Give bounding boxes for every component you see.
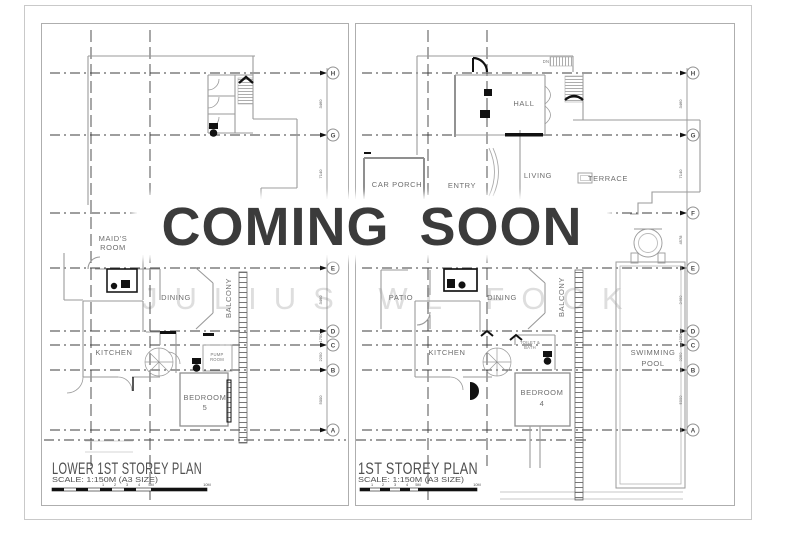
scale-tick: 10M: [203, 483, 210, 487]
dim-value: 3460: [678, 99, 683, 109]
floor-plan-sheet: { "overlay": { "text": "COMING SOON" }, …: [0, 0, 800, 533]
plan-scale-note: SCALE: 1:150M (A3 SIZE): [358, 475, 464, 484]
scale-tick: 10M: [473, 483, 480, 487]
scale-tick: 3: [126, 483, 128, 487]
right-grid-bubbles: H G F E D C B A: [687, 67, 699, 436]
room-label-bedroom-5: 5: [203, 403, 208, 412]
left-plan: H G E D C B A 3460 7140 3460 1750 2250 5…: [44, 30, 346, 500]
room-label-terrace: TERRACE: [588, 174, 628, 183]
grid-bubble-label: D: [331, 329, 336, 336]
grid-bubble-label: B: [331, 368, 336, 375]
grid-bubble-label: A: [331, 428, 336, 435]
fountain: [631, 229, 665, 263]
left-grid-lines: [44, 30, 346, 500]
stair-direction-label: DN: [543, 59, 549, 64]
grid-bubble-label: A: [691, 428, 696, 435]
grid-bubble-label: H: [331, 71, 336, 78]
scale-tick: 4: [406, 483, 408, 487]
scale-tick: 4: [138, 483, 140, 487]
room-label-maids-room: ROOM: [100, 243, 126, 252]
dim-value: 5000: [678, 395, 683, 405]
room-label-bedroom-4: 4: [540, 399, 545, 408]
dim-value: 3460: [318, 295, 323, 305]
coming-soon-banner: COMING SOON: [137, 199, 607, 255]
right-dimension-values: 3460 7140 4578 3460 1250 3250 5000: [678, 99, 683, 405]
left-plan-room-labels: MAID'S ROOM DINING BALCONY KITCHEN PUMP …: [95, 234, 233, 412]
spiral-stair: [145, 348, 173, 376]
room-label-patio: PATIO: [389, 293, 413, 302]
left-plan-stairs: [145, 77, 253, 443]
room-label-entry: ENTRY: [448, 181, 476, 190]
coming-soon-text: COMING SOON: [161, 196, 582, 258]
grid-bubble-label: E: [691, 266, 695, 273]
left-title-block: LOWER 1ST STOREY PLAN SCALE: 1:150M (A3 …: [52, 459, 211, 491]
room-label-maids-room: MAID'S: [99, 234, 128, 243]
grid-bubble-label: B: [691, 368, 696, 375]
dim-value: 2250: [318, 352, 323, 362]
right-plan-stairs: [483, 57, 583, 500]
scale-bar: 1 2 3 4 5M 10M: [360, 483, 481, 491]
grid-bubble-label: C: [331, 343, 336, 350]
room-label-balcony: BALCONY: [224, 278, 233, 318]
grid-bubble-label: F: [691, 211, 695, 218]
right-plan: H G F E D C B A 3460 7140 4578 3460 1250…: [356, 30, 700, 500]
balcony-ladder: [239, 272, 247, 443]
grid-bubble-label: D: [691, 329, 696, 336]
dim-value: 4578: [678, 235, 683, 245]
grid-bubble-label: H: [691, 71, 696, 78]
grid-bubble-label: C: [691, 343, 696, 350]
scale-tick: 1: [371, 483, 373, 487]
dim-value: 5000: [318, 395, 323, 405]
dim-value: 7140: [678, 169, 683, 179]
room-label-swimming-pool: POOL: [641, 359, 664, 368]
room-label-dining: DINING: [487, 293, 517, 302]
dim-value: 1750: [318, 333, 323, 343]
room-label-kitchen: KITCHEN: [95, 348, 132, 357]
right-title-block: 1ST STOREY PLAN SCALE: 1:150M (A3 SIZE) …: [358, 459, 481, 491]
grid-bubble-label: G: [331, 133, 336, 140]
dim-value: 7140: [318, 169, 323, 179]
room-label-toilet-bath: BATH: [524, 345, 536, 350]
spiral-stair: [483, 348, 511, 376]
right-plan-walls: [364, 56, 700, 499]
scale-tick: 5M: [415, 483, 420, 487]
plan-scale-note: SCALE: 1:150M (A3 SIZE): [52, 475, 158, 484]
room-label-balcony: BALCONY: [557, 277, 566, 317]
room-label-hall: HALL: [513, 99, 534, 108]
room-label-bedroom-5: BEDROOM: [184, 393, 227, 402]
scale-tick: 1: [102, 483, 104, 487]
floor-plan-drawing: H G E D C B A 3460 7140 3460 1750 2250 5…: [0, 0, 800, 533]
scale-tick: 3: [394, 483, 396, 487]
dim-value: 3250: [678, 352, 683, 362]
scale-tick: 2: [382, 483, 384, 487]
dim-value: 3460: [678, 295, 683, 305]
dim-value: 1250: [678, 333, 683, 343]
room-label-living: LIVING: [524, 171, 552, 180]
balcony-ladder: [575, 270, 583, 500]
scale-tick: 2: [114, 483, 116, 487]
room-label-car-porch: CAR PORCH: [372, 180, 422, 189]
dim-value: 3460: [318, 99, 323, 109]
room-label-dining: DINING: [161, 293, 191, 302]
left-plan-fixtures: [111, 123, 231, 422]
room-label-bedroom-4: BEDROOM: [521, 388, 564, 397]
grid-bubble-label: E: [331, 266, 335, 273]
room-label-pump-room: ROOM: [210, 357, 224, 362]
grid-bubble-label: G: [691, 133, 696, 140]
room-label-swimming-pool: SWIMMING: [631, 348, 676, 357]
scale-bar: 1 2 3 4 5M 10M: [52, 483, 211, 491]
room-label-kitchen: KITCHEN: [428, 348, 465, 357]
scale-tick: 5M: [148, 483, 153, 487]
